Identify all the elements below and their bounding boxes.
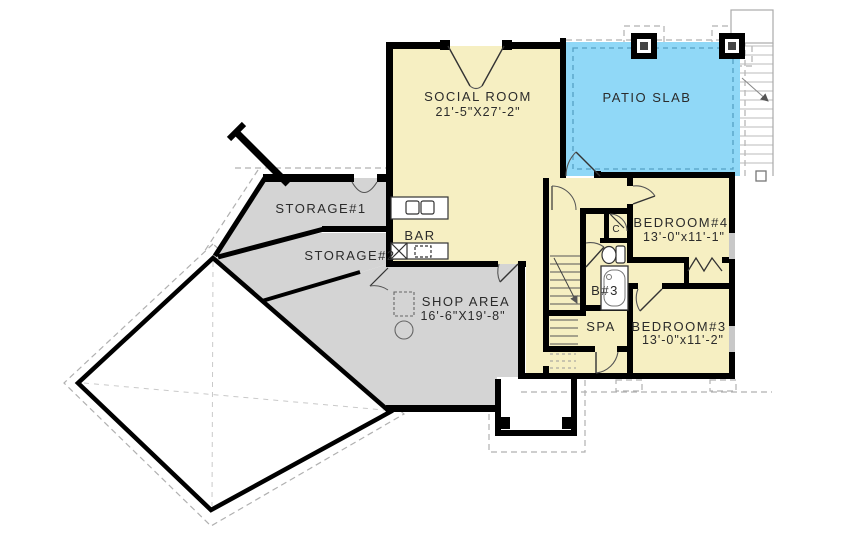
- bar-sink: [421, 201, 434, 214]
- label-bedroom3: BEDROOM#3: [631, 319, 726, 334]
- column-marker: [719, 33, 745, 59]
- toilet: [602, 246, 625, 264]
- room-patio: [566, 42, 740, 176]
- label-bedroom4-dims: 13'-0"x11'-1": [643, 230, 725, 244]
- label-storage2: STORAGE#2: [304, 248, 395, 263]
- column-marker: [631, 33, 657, 59]
- floor-plan: SOCIAL ROOM 21'-5"X27'-2" PATIO SLAB STO…: [0, 0, 850, 533]
- label-shop-area-dims: 16'-6"X19'-8": [420, 309, 505, 323]
- bar-sink: [406, 201, 419, 214]
- floor-plan-drawing: SOCIAL ROOM 21'-5"X27'-2" PATIO SLAB STO…: [0, 0, 850, 533]
- label-spa: SPA: [586, 319, 616, 334]
- label-bedroom3-dims: 13'-0"x11'-2": [642, 333, 724, 347]
- label-bath3: B#3: [591, 283, 619, 298]
- label-bedroom4: BEDROOM#4: [633, 215, 728, 230]
- label-bar: BAR: [404, 228, 435, 243]
- label-storage1: STORAGE#1: [275, 201, 366, 216]
- label-closet: C: [612, 224, 619, 235]
- label-social-room: SOCIAL ROOM: [424, 89, 532, 104]
- label-social-room-dims: 21'-5"X27'-2": [435, 105, 520, 119]
- label-patio-slab: PATIO SLAB: [603, 90, 692, 105]
- label-shop-area: SHOP AREA: [422, 294, 510, 309]
- stair-direction-arrow-icon: [742, 78, 768, 101]
